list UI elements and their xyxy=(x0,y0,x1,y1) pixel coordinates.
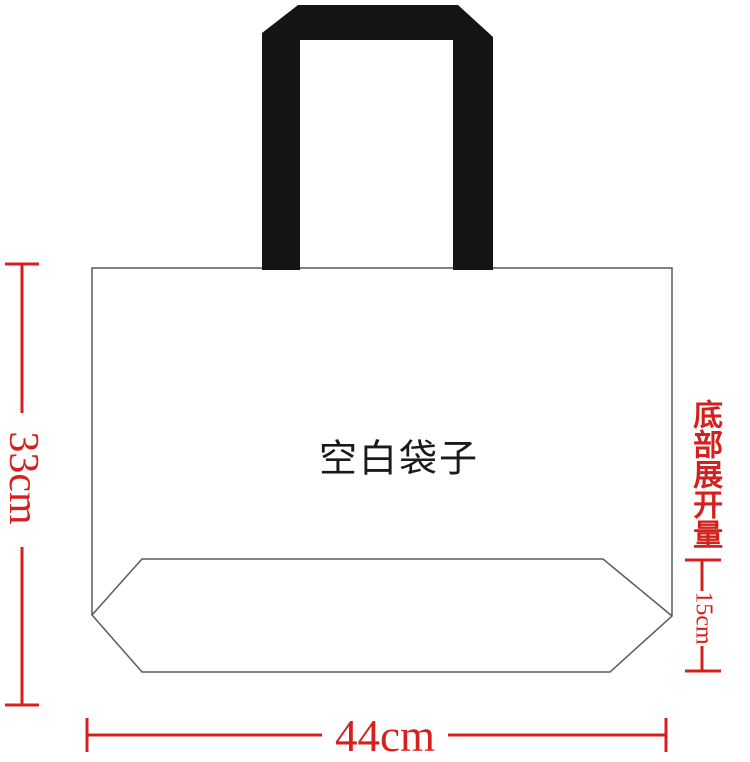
width-dimension-label: 44cm xyxy=(335,710,435,762)
height-dimension-label: 33cm xyxy=(0,431,47,524)
bag-spec-diagram: 空白袋子 33cm 44cm 底部展开量 15cm xyxy=(0,0,750,762)
bag-handle xyxy=(262,5,493,270)
bag-label: 空白袋子 xyxy=(319,428,479,483)
bottom-expansion-title: 底部展开量 xyxy=(689,399,719,549)
diagram-shapes xyxy=(0,0,750,762)
bottom-expansion-dimension-label: 15cm xyxy=(690,591,717,644)
